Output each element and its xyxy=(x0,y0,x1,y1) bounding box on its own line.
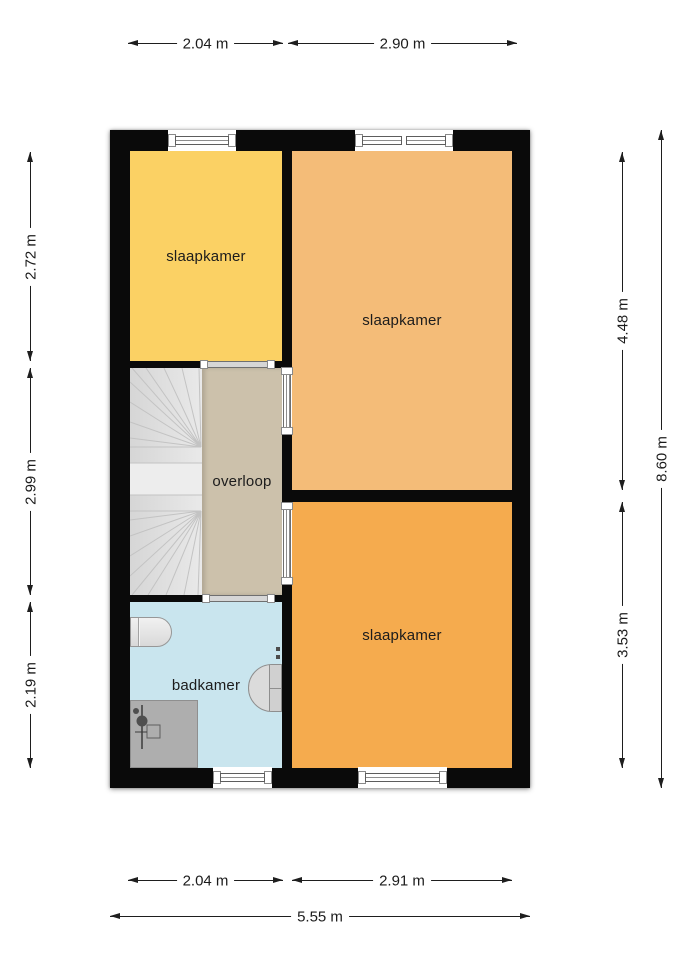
room-label: overloop xyxy=(212,473,271,490)
dimension-label: 2.04 m xyxy=(177,873,235,890)
shower-icon xyxy=(130,700,198,768)
dimension-bottom-1: 2.04 m xyxy=(128,880,283,881)
room-label: slaapkamer xyxy=(362,627,442,644)
room-landing: overloop xyxy=(202,368,282,595)
dimension-label: 2.91 m xyxy=(373,873,431,890)
dimension-left-1: 2.72 m xyxy=(30,152,31,361)
room-bedroom-bottom-right: slaapkamer xyxy=(292,502,512,768)
dimension-left-3: 2.19 m xyxy=(30,602,31,768)
dimension-bottom-2: 2.91 m xyxy=(292,880,512,881)
dimension-top-1: 2.04 m xyxy=(128,43,283,44)
dimension-label: 4.48 m xyxy=(615,292,632,350)
room-bedroom-top-right: slaapkamer xyxy=(292,151,512,490)
floorplan: slaapkamer slaapkamer slaapkamer overloo… xyxy=(110,130,530,788)
room-bedroom-top-left: slaapkamer xyxy=(130,151,282,361)
door-opening-icon xyxy=(202,595,275,602)
dimension-label: 2.99 m xyxy=(23,453,40,511)
dimension-label: 3.53 m xyxy=(615,606,632,664)
door-opening-icon xyxy=(282,502,292,585)
floorplan-canvas: 2.04 m 2.90 m 2.72 m 2.99 m 2.19 m 4.48 … xyxy=(0,0,679,960)
dimension-label: 8.60 m xyxy=(654,430,671,488)
dimension-label: 2.72 m xyxy=(23,228,40,286)
stairs-icon xyxy=(130,368,202,595)
window-icon xyxy=(213,767,272,788)
room-label: slaapkamer xyxy=(166,248,246,265)
room-label: badkamer xyxy=(172,677,240,694)
dimension-label: 2.19 m xyxy=(23,656,40,714)
dimension-bottom-total: 5.55 m xyxy=(110,916,530,917)
dimension-left-2: 2.99 m xyxy=(30,368,31,595)
toilet-icon xyxy=(130,617,172,647)
dimension-label: 2.90 m xyxy=(374,36,432,53)
dimension-top-2: 2.90 m xyxy=(288,43,517,44)
room-label: slaapkamer xyxy=(362,312,442,329)
dimension-right-2: 3.53 m xyxy=(622,502,623,768)
door-opening-icon xyxy=(282,367,292,435)
window-icon xyxy=(168,130,236,151)
dimension-right-total: 8.60 m xyxy=(661,130,662,788)
window-icon xyxy=(358,767,447,788)
door-opening-icon xyxy=(200,361,275,368)
dimension-right-1: 4.48 m xyxy=(622,152,623,490)
wall-fixture-dots xyxy=(276,647,280,663)
dimension-label: 2.04 m xyxy=(177,36,235,53)
dimension-label: 5.55 m xyxy=(291,909,349,926)
window-icon xyxy=(355,130,453,151)
